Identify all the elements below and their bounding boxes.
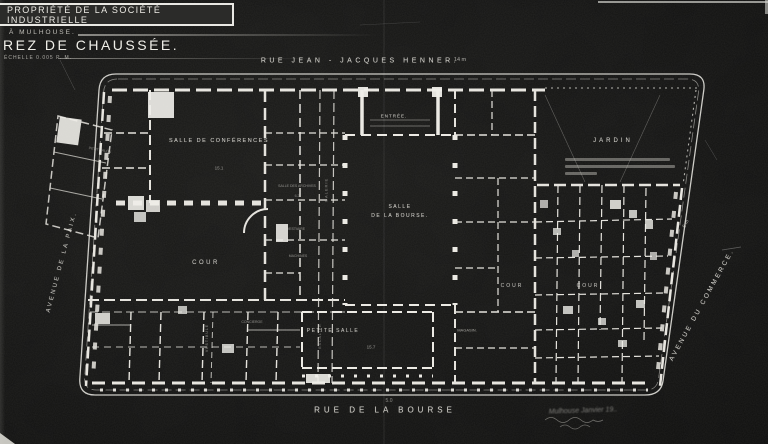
room-label-machines: MACHINES (289, 254, 307, 258)
street-label-bottom: RUE DE LA BOURSE (314, 406, 456, 415)
room-label-escalier: ESCALIER (318, 323, 322, 348)
photo-corner-bottom-left (0, 433, 15, 444)
room-label-archives: SALLE DES ARCHIVES (278, 184, 316, 188)
room-label-petite-salle: PETITE SALLE (307, 328, 359, 334)
scanned-floor-plan-photo: PROPRIÉTÉ DE LA SOCIÉTÉ INDUSTRIELLE À M… (0, 0, 768, 444)
room-dim-salle-conferences: 15.1 (215, 166, 224, 171)
jardin-note-line (565, 165, 675, 168)
street-dim-bottom: 5.0 (386, 398, 393, 404)
street-label-top: RUE JEAN - JACQUES HENNER. (261, 58, 459, 65)
room-label-salle-bourse-line2: DE LA BOURSE. (371, 213, 429, 219)
photo-edge-top (598, 1, 768, 3)
room-label-jardin: JARDIN (593, 138, 633, 144)
court-label-left: COUR (192, 260, 220, 266)
room-label-vestibule: VESTIBULE (205, 324, 209, 352)
court-label-right: COUR (577, 283, 600, 289)
room-label-salle-bourse-line1: SALLE (388, 204, 411, 210)
room-label-magasin: MAGASIN. (457, 328, 477, 333)
room-label-concierge: CONCIERGE (241, 320, 262, 324)
jardin-note-line (565, 158, 670, 161)
plan-subtitle: À MULHOUSE. (9, 29, 76, 36)
room-dim-archives: 6.2 (295, 194, 300, 198)
floor-title: REZ DE CHAUSSÉE. (3, 37, 179, 53)
room-label-galerie: GALERIE (324, 178, 329, 202)
street-dim-top: 14 m (454, 57, 466, 63)
title-box: PROPRIÉTÉ DE LA SOCIÉTÉ INDUSTRIELLE (0, 3, 234, 26)
room-dim-petite-salle: 15.7 (367, 345, 376, 350)
floor-plan-drawing (0, 0, 768, 444)
room-label-vestiaire: VESTIAIRE (287, 227, 305, 231)
plan-title: PROPRIÉTÉ DE LA SOCIÉTÉ INDUSTRIELLE (7, 5, 232, 25)
title-underline (78, 34, 378, 36)
photo-grain-texture (0, 0, 768, 444)
room-label-entree: ENTRÉE. (381, 114, 408, 119)
room-label-salle-conferences: SALLE DE CONFÉRENCES (169, 138, 269, 144)
jardin-note-line (565, 172, 597, 175)
court-label-mid: COUR (501, 283, 524, 289)
